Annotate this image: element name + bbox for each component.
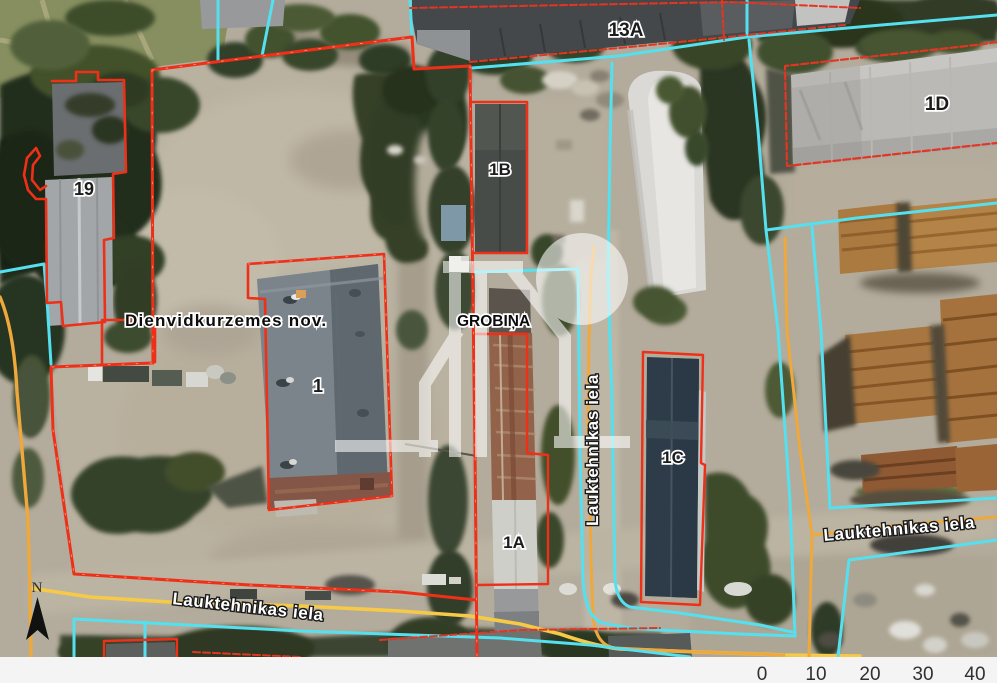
svg-text:10: 10 [805, 664, 826, 683]
svg-text:1B: 1B [489, 160, 511, 179]
svg-text:Dienvidkurzemes nov.: Dienvidkurzemes nov. [125, 311, 327, 330]
svg-text:1A: 1A [503, 533, 525, 552]
svg-text:1D: 1D [925, 94, 949, 115]
svg-text:20: 20 [859, 664, 880, 683]
svg-text:N: N [32, 580, 43, 596]
svg-text:Lauktehnikas iela: Lauktehnikas iela [583, 374, 602, 526]
svg-text:GROBIŅA: GROBIŅA [457, 313, 530, 330]
svg-text:40: 40 [964, 664, 985, 683]
svg-text:13A: 13A [609, 20, 644, 41]
svg-text:1: 1 [313, 376, 323, 396]
svg-text:19: 19 [74, 179, 94, 199]
svg-text:0: 0 [757, 664, 768, 683]
svg-text:30: 30 [912, 664, 933, 683]
svg-text:1C: 1C [662, 448, 684, 467]
